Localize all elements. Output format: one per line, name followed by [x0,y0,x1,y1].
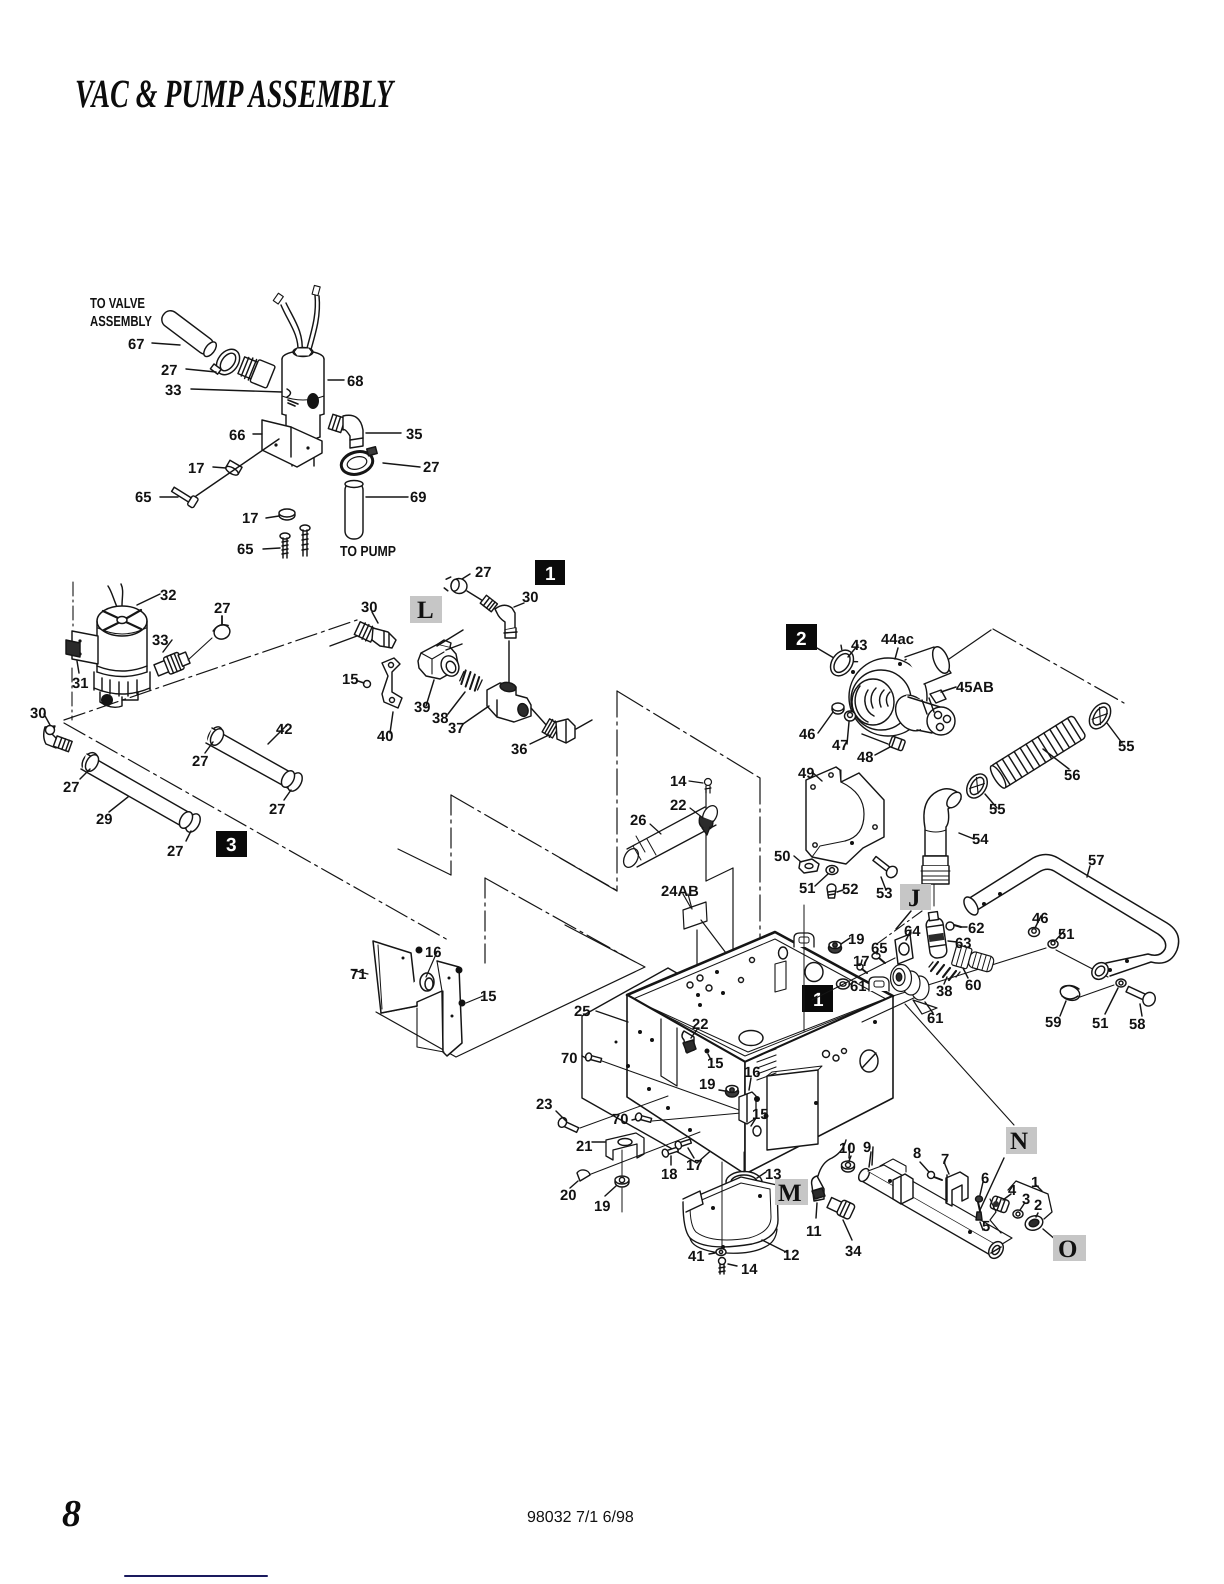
svg-text:27: 27 [423,460,439,476]
svg-text:25: 25 [574,1004,590,1020]
svg-text:30: 30 [30,706,46,722]
svg-text:64: 64 [904,924,921,940]
svg-text:17: 17 [686,1158,702,1174]
svg-text:61: 61 [927,1011,943,1027]
svg-text:54: 54 [972,832,989,848]
svg-text:35: 35 [406,427,422,443]
svg-text:6: 6 [981,1171,989,1187]
svg-text:44ac: 44ac [881,632,914,648]
svg-text:3: 3 [226,835,237,856]
svg-text:22: 22 [692,1017,708,1033]
svg-text:53: 53 [876,886,892,902]
svg-text:23: 23 [536,1097,552,1113]
svg-text:17: 17 [188,461,204,477]
svg-text:27: 27 [214,601,230,617]
svg-text:51: 51 [1058,927,1074,943]
svg-text:46: 46 [799,727,815,743]
svg-text:61: 61 [850,979,866,995]
svg-text:50: 50 [774,849,790,865]
svg-text:15: 15 [342,672,358,688]
svg-text:66: 66 [229,428,245,444]
svg-text:52: 52 [842,882,858,898]
svg-text:55: 55 [989,802,1005,818]
svg-text:67: 67 [128,337,144,353]
svg-text:47: 47 [832,738,848,754]
svg-text:M: M [778,1180,802,1207]
svg-text:27: 27 [269,802,285,818]
svg-text:51: 51 [1092,1016,1108,1032]
svg-text:55: 55 [1118,739,1134,755]
svg-text:O: O [1058,1236,1077,1263]
svg-text:22: 22 [670,798,686,814]
svg-text:43: 43 [851,638,867,654]
svg-text:32: 32 [160,588,176,604]
svg-text:J: J [908,885,921,912]
svg-text:38: 38 [936,984,952,1000]
svg-text:5: 5 [982,1219,990,1235]
svg-text:4: 4 [1008,1183,1017,1199]
svg-text:27: 27 [161,363,177,379]
svg-text:9: 9 [863,1140,871,1156]
svg-text:57: 57 [1088,853,1104,869]
svg-text:12: 12 [783,1248,799,1264]
svg-text:31: 31 [72,676,88,692]
svg-text:38: 38 [432,711,448,727]
svg-text:14: 14 [670,774,687,790]
svg-text:16: 16 [425,945,441,961]
svg-text:19: 19 [594,1199,610,1215]
svg-text:27: 27 [63,780,79,796]
svg-text:16: 16 [744,1065,760,1081]
svg-text:30: 30 [522,590,538,606]
svg-text:33: 33 [152,633,168,649]
svg-text:98032 7/1 6/98: 98032 7/1 6/98 [527,1509,634,1526]
svg-text:1: 1 [545,564,556,585]
svg-text:8: 8 [913,1146,921,1162]
svg-text:36: 36 [511,742,527,758]
svg-text:56: 56 [1064,768,1080,784]
svg-text:41: 41 [688,1249,704,1265]
svg-text:20: 20 [560,1188,576,1204]
svg-text:27: 27 [192,754,208,770]
svg-text:N: N [1010,1128,1028,1155]
svg-text:15: 15 [752,1107,768,1123]
svg-text:42: 42 [276,722,292,738]
svg-text:2: 2 [1034,1198,1042,1214]
svg-text:VAC & PUMP ASSEMBLY: VAC & PUMP ASSEMBLY [75,71,395,116]
svg-text:11: 11 [806,1224,822,1240]
svg-text:62: 62 [968,921,984,937]
svg-text:ASSEMBLY: ASSEMBLY [90,314,152,330]
svg-text:14: 14 [741,1262,758,1278]
svg-text:13: 13 [765,1167,781,1183]
svg-text:L: L [417,597,434,624]
svg-text:10: 10 [839,1141,855,1157]
svg-text:40: 40 [377,729,393,745]
svg-text:69: 69 [410,490,426,506]
svg-text:59: 59 [1045,1015,1061,1031]
svg-text:68: 68 [347,374,363,390]
svg-text:24AB: 24AB [661,884,699,900]
svg-text:39: 39 [414,700,430,716]
svg-text:51: 51 [799,881,815,897]
svg-text:18: 18 [661,1167,677,1183]
svg-text:19: 19 [699,1077,715,1093]
svg-text:71: 71 [350,967,366,983]
svg-text:70: 70 [612,1112,628,1128]
svg-text:2: 2 [796,629,807,650]
svg-text:58: 58 [1129,1017,1145,1033]
svg-text:21: 21 [576,1139,592,1155]
svg-text:48: 48 [857,750,873,766]
svg-text:65: 65 [871,941,887,957]
svg-text:65: 65 [135,490,151,506]
svg-text:TO VALVE: TO VALVE [90,296,145,312]
svg-text:49: 49 [798,766,814,782]
svg-text:17: 17 [853,954,869,970]
svg-text:1: 1 [813,990,824,1011]
svg-text:37: 37 [448,721,464,737]
svg-text:3: 3 [1022,1192,1030,1208]
svg-text:33: 33 [165,383,181,399]
svg-text:1: 1 [1031,1175,1039,1191]
svg-text:TO PUMP: TO PUMP [340,544,396,560]
svg-text:70: 70 [561,1051,577,1067]
svg-text:63: 63 [955,936,971,952]
svg-text:26: 26 [630,813,646,829]
svg-text:8: 8 [62,1493,81,1535]
svg-text:19: 19 [848,932,864,948]
svg-text:60: 60 [965,978,981,994]
svg-text:34: 34 [845,1244,862,1260]
svg-text:30: 30 [361,600,377,616]
svg-text:27: 27 [167,844,183,860]
svg-text:45AB: 45AB [956,680,994,696]
svg-text:27: 27 [475,565,491,581]
svg-text:46: 46 [1032,911,1048,927]
svg-text:17: 17 [242,511,258,527]
svg-text:15: 15 [707,1056,723,1072]
svg-text:65: 65 [237,542,253,558]
svg-text:7: 7 [941,1152,949,1168]
svg-text:29: 29 [96,812,112,828]
svg-text:15: 15 [480,989,496,1005]
